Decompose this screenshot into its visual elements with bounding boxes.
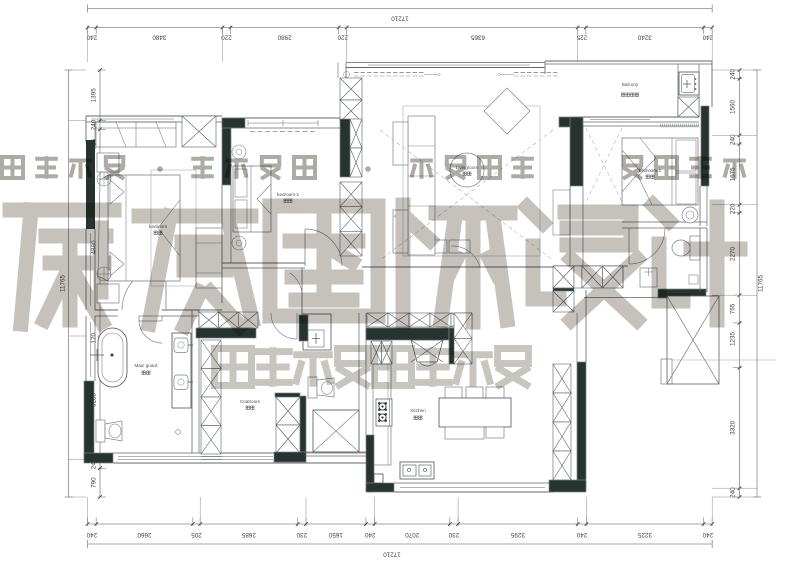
- svg-text:1560: 1560: [730, 100, 737, 115]
- svg-text:120: 120: [91, 332, 98, 343]
- svg-text:240: 240: [730, 487, 737, 498]
- svg-text:2980: 2980: [277, 34, 292, 41]
- svg-text:1395: 1395: [91, 88, 98, 103]
- svg-text:240: 240: [730, 134, 737, 145]
- svg-text:17210: 17210: [391, 15, 409, 22]
- svg-text:Kitchen: Kitchen: [410, 408, 426, 413]
- svg-text:6365: 6365: [471, 34, 486, 41]
- svg-text:240: 240: [86, 531, 97, 538]
- svg-text:11765: 11765: [758, 274, 765, 292]
- svg-text:bedroom-1: bedroom-1: [277, 192, 300, 197]
- svg-text:3320: 3320: [730, 420, 737, 435]
- svg-text:1235: 1235: [730, 332, 737, 347]
- svg-text:2685: 2685: [241, 531, 256, 538]
- svg-text:230: 230: [296, 531, 307, 538]
- svg-text:3240: 3240: [637, 34, 652, 41]
- svg-text:Main guard: Main guard: [135, 363, 158, 368]
- svg-text:Coatroom: Coatroom: [240, 399, 260, 404]
- svg-text:230: 230: [448, 531, 459, 538]
- svg-text:220: 220: [337, 34, 348, 41]
- svg-text:Balcony: Balcony: [622, 82, 639, 87]
- svg-text:3225: 3225: [638, 531, 653, 538]
- svg-text:17210: 17210: [383, 551, 401, 558]
- svg-text:240: 240: [702, 34, 713, 41]
- svg-text:1650: 1650: [328, 531, 343, 538]
- svg-text:205: 205: [191, 531, 202, 538]
- svg-text:790: 790: [91, 477, 98, 488]
- svg-text:240: 240: [576, 531, 587, 538]
- svg-text:765: 765: [730, 303, 737, 314]
- svg-text:240: 240: [702, 531, 713, 538]
- svg-text:3295: 3295: [510, 531, 525, 538]
- svg-text:3480: 3480: [152, 34, 167, 41]
- svg-text:240: 240: [91, 119, 98, 130]
- svg-text:2660: 2660: [137, 531, 152, 538]
- svg-text:240: 240: [364, 531, 375, 538]
- svg-text:2070: 2070: [405, 531, 420, 538]
